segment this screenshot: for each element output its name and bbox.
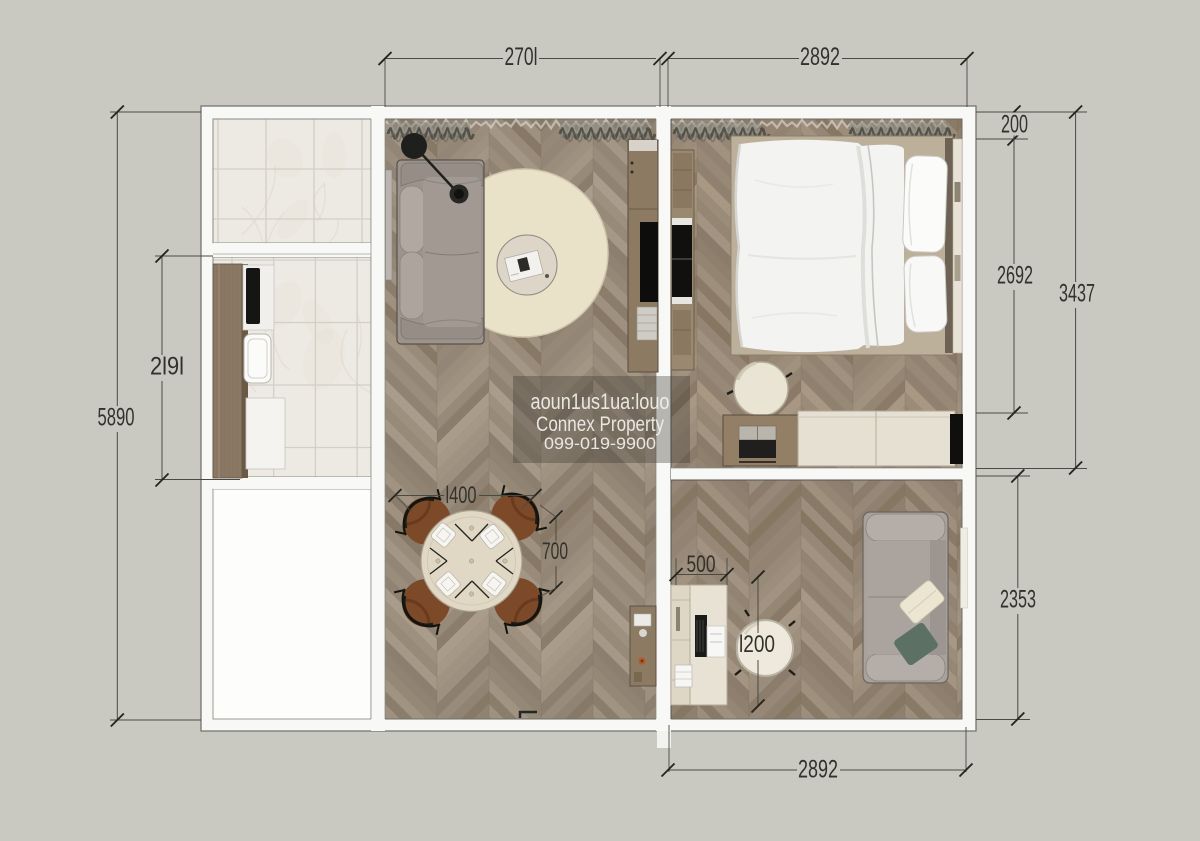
- svg-text:Connex Property: Connex Property: [536, 413, 664, 436]
- svg-text:500: 500: [687, 551, 716, 578]
- svg-text:aoun1us1ua:louo: aoun1us1ua:louo: [531, 389, 670, 414]
- svg-text:l400: l400: [446, 482, 477, 509]
- svg-text:2l9l: 2l9l: [150, 353, 184, 381]
- svg-text:2892: 2892: [800, 43, 840, 71]
- svg-text:2692: 2692: [997, 262, 1033, 290]
- svg-text:l200: l200: [739, 631, 775, 658]
- svg-text:3437: 3437: [1059, 280, 1095, 308]
- svg-text:200: 200: [1001, 111, 1028, 139]
- svg-text:2892: 2892: [798, 756, 838, 784]
- svg-text:700: 700: [542, 538, 568, 565]
- svg-text:2353: 2353: [1000, 586, 1036, 614]
- svg-text:5890: 5890: [98, 404, 135, 432]
- svg-text:099-019-9900: 099-019-9900: [544, 434, 656, 453]
- svg-text:270l: 270l: [505, 43, 538, 71]
